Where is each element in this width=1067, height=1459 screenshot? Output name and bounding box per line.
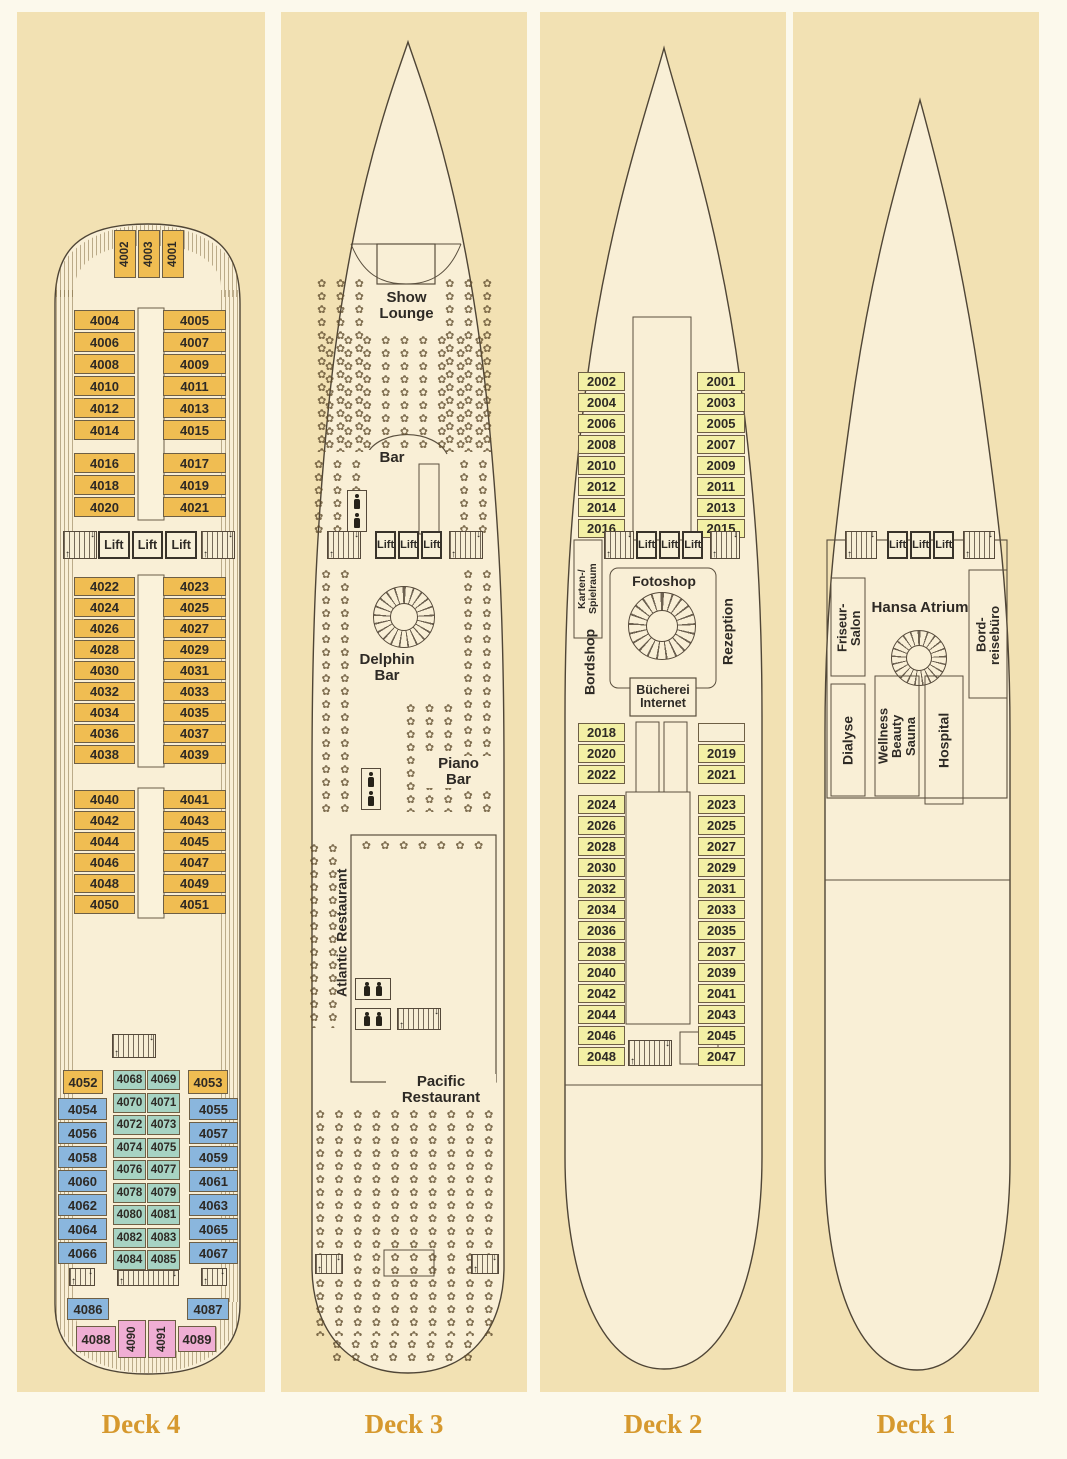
cabin-2031: 2031 bbox=[698, 879, 745, 898]
cabin-4015: 4015 bbox=[163, 420, 226, 440]
lift-icon: Lift bbox=[98, 531, 130, 559]
lift-icon: Lift bbox=[636, 531, 657, 559]
cabin-4069: 4069 bbox=[147, 1070, 180, 1090]
cabin-2009: 2009 bbox=[697, 456, 745, 475]
cabin-4026: 4026 bbox=[74, 619, 135, 638]
stairs-icon bbox=[604, 531, 634, 559]
cabin-4077: 4077 bbox=[147, 1160, 180, 1180]
cabin-2018: 2018 bbox=[578, 723, 625, 742]
room-friseur-salon: Friseur- Salon bbox=[833, 584, 865, 672]
cabin-4035: 4035 bbox=[163, 703, 226, 722]
cabin-2003: 2003 bbox=[697, 393, 745, 412]
deck-2-label: Deck 2 bbox=[540, 1402, 786, 1446]
lift-icon: Lift bbox=[165, 531, 197, 559]
cabin-4074: 4074 bbox=[113, 1138, 146, 1158]
seating-pattern: ✿ ✿ ✿ ✿ ✿ ✿ ✿ ✿ ✿ ✿ ✿ ✿ ✿ ✿ ✿ ✿ ✿ ✿ bbox=[329, 1338, 479, 1366]
stairs-icon bbox=[845, 531, 877, 559]
cabin-4008: 4008 bbox=[74, 354, 135, 374]
cabin-4023: 4023 bbox=[163, 577, 226, 596]
person-icon bbox=[363, 982, 371, 997]
stairs-icon bbox=[710, 531, 740, 559]
cabin-column: 401740194021 bbox=[163, 453, 226, 517]
cabin-4082: 4082 bbox=[113, 1228, 146, 1248]
cabin-column: 406940714073407540774079408140834085 bbox=[147, 1070, 180, 1270]
stairs-icon bbox=[117, 1270, 179, 1286]
lift-bank: Lift Lift Lift bbox=[98, 531, 197, 559]
cabin-2023: 2023 bbox=[698, 795, 745, 814]
corridor bbox=[138, 575, 164, 767]
cabin-column: 20192021 bbox=[698, 723, 745, 784]
cabin-2028: 2028 bbox=[578, 837, 625, 856]
cabin-4018: 4018 bbox=[74, 475, 135, 495]
cabin-column: 2024202620282030203220342036203820402042… bbox=[578, 795, 625, 1066]
stairs-icon bbox=[397, 1008, 441, 1030]
cabin-4085: 4085 bbox=[147, 1250, 180, 1270]
cabin-2001: 2001 bbox=[697, 372, 745, 391]
cabin-2048: 2048 bbox=[578, 1047, 625, 1066]
cabin-2026: 2026 bbox=[578, 816, 625, 835]
venue-atlantic-restaurant: Atlantic Restaurant bbox=[331, 860, 353, 1005]
room-hospital: Hospital bbox=[927, 684, 961, 796]
lift-icon: Lift bbox=[659, 531, 680, 559]
spiral-stairs-icon bbox=[373, 586, 435, 648]
cabin-2036: 2036 bbox=[578, 921, 625, 940]
cabin-4047: 4047 bbox=[163, 853, 226, 872]
cabin-4017: 4017 bbox=[163, 453, 226, 473]
venue-pacific-restaurant: Pacific Restaurant bbox=[386, 1074, 496, 1106]
lift-icon: Lift bbox=[682, 531, 703, 559]
deck-plan-page: 400240034001 400440064008401040124014 40… bbox=[0, 0, 1067, 1459]
cabin-2044: 2044 bbox=[578, 1005, 625, 1024]
cabin-4001: 4001 bbox=[162, 230, 184, 278]
cabin-2006: 2006 bbox=[578, 414, 625, 433]
cabin-2012: 2012 bbox=[578, 477, 625, 496]
seating-pattern: ✿ ✿ ✿ ✿ ✿ ✿ ✿ ✿ ✿ ✿ ✿ ✿ ✿ ✿ ✿ ✿ ✿ ✿ ✿ ✿ … bbox=[313, 568, 361, 812]
cabin-4065: 4065 bbox=[189, 1218, 238, 1240]
cabin-4006: 4006 bbox=[74, 332, 135, 352]
restroom-icon bbox=[361, 768, 381, 810]
cabin-2019: 2019 bbox=[698, 744, 745, 763]
room-bordreisebuero: Bord- reisebüro bbox=[971, 578, 1005, 692]
cabin-4090: 4090 bbox=[118, 1320, 146, 1358]
room-dialyse: Dialyse bbox=[833, 692, 863, 788]
cabin-4055: 4055 bbox=[189, 1098, 238, 1120]
galley-area bbox=[351, 835, 496, 1082]
spiral-stairs-icon bbox=[628, 592, 696, 660]
person-icon bbox=[367, 772, 375, 787]
cabin-4030: 4030 bbox=[74, 661, 135, 680]
cabin-4003: 4003 bbox=[138, 230, 160, 278]
cabin-4034: 4034 bbox=[74, 703, 135, 722]
cabin-4012: 4012 bbox=[74, 398, 135, 418]
cabin-4083: 4083 bbox=[147, 1228, 180, 1248]
cabin-4019: 4019 bbox=[163, 475, 226, 495]
cabin-2007: 2007 bbox=[697, 435, 745, 454]
deck-4-label: Deck 4 bbox=[17, 1402, 265, 1446]
cabin-4064: 4064 bbox=[58, 1218, 107, 1240]
cabin-4071: 4071 bbox=[147, 1093, 180, 1113]
cabin-column: 201820202022 bbox=[578, 723, 625, 784]
stairs-icon bbox=[201, 531, 235, 559]
person-icon bbox=[367, 791, 375, 806]
deck-3-panel: ✿ ✿ ✿ ✿ ✿ ✿ ✿ ✿ ✿ ✿ ✿ ✿ ✿ ✿ ✿ ✿ ✿ ✿ ✿ ✿ … bbox=[281, 12, 527, 1392]
cabin-4066: 4066 bbox=[58, 1242, 107, 1264]
deck-1-label: Deck 1 bbox=[793, 1402, 1039, 1446]
cabin-4046: 4046 bbox=[74, 853, 135, 872]
cabin-4043: 4043 bbox=[163, 811, 226, 830]
cabin-2033: 2033 bbox=[698, 900, 745, 919]
venue-show-lounge: Show Lounge bbox=[364, 290, 449, 322]
cabin-2008: 2008 bbox=[578, 435, 625, 454]
cabin-4056: 4056 bbox=[58, 1122, 107, 1144]
cabin-4091: 4091 bbox=[148, 1320, 176, 1358]
cabin-4009: 4009 bbox=[163, 354, 226, 374]
person-icon bbox=[375, 982, 383, 997]
cabin-2045: 2045 bbox=[698, 1026, 745, 1045]
cabin-4020: 4020 bbox=[74, 497, 135, 517]
cabin-4057: 4057 bbox=[189, 1122, 238, 1144]
cabin-2047: 2047 bbox=[698, 1047, 745, 1066]
stairs-icon bbox=[315, 1254, 343, 1274]
cabin-4007: 4007 bbox=[163, 332, 226, 352]
lift-icon: Lift bbox=[910, 531, 931, 559]
cabin-4011: 4011 bbox=[163, 376, 226, 396]
cabin-4088: 4088 bbox=[76, 1326, 116, 1352]
cabin-4075: 4075 bbox=[147, 1138, 180, 1158]
deck-2-panel: 20022004200620082010201220142016 2001200… bbox=[540, 12, 786, 1392]
lift-bank: Lift Lift Lift bbox=[887, 531, 950, 559]
cabin-2034: 2034 bbox=[578, 900, 625, 919]
lift-icon: Lift bbox=[887, 531, 908, 559]
cabin-4073: 4073 bbox=[147, 1115, 180, 1135]
cabin-2020: 2020 bbox=[578, 744, 625, 763]
room-rezeption: Rezeption bbox=[716, 584, 740, 679]
cabin-4044: 4044 bbox=[74, 832, 135, 851]
cabin-4049: 4049 bbox=[163, 874, 226, 893]
cabin-4067: 4067 bbox=[189, 1242, 238, 1264]
lift-icon: Lift bbox=[398, 531, 419, 559]
corridor bbox=[138, 308, 164, 520]
stairs-icon bbox=[63, 531, 97, 559]
cabin-4038: 4038 bbox=[74, 745, 135, 764]
restroom-icon bbox=[347, 490, 367, 532]
person-icon bbox=[363, 1012, 371, 1027]
cabin-4078: 4078 bbox=[113, 1183, 146, 1203]
cabin-4024: 4024 bbox=[74, 598, 135, 617]
venue-piano-bar: Piano Bar bbox=[421, 756, 496, 788]
cabin-4070: 4070 bbox=[113, 1093, 146, 1113]
deck-1-panel: Lift Lift Lift Friseur- Salon Hansa Atri… bbox=[793, 12, 1039, 1392]
cabin-4016: 4016 bbox=[74, 453, 135, 473]
cabin-blank bbox=[698, 723, 745, 742]
cabin-4036: 4036 bbox=[74, 724, 135, 743]
seating-pattern: ✿ ✿ ✿ ✿ ✿ ✿ ✿ ✿ ✿ ✿ ✿ ✿ ✿ ✿ ✿ ✿ ✿ ✿ ✿ ✿ … bbox=[311, 1108, 501, 1336]
person-icon bbox=[375, 1012, 383, 1027]
cabin-2010: 2010 bbox=[578, 456, 625, 475]
cabin-2004: 2004 bbox=[578, 393, 625, 412]
cabin-4013: 4013 bbox=[163, 398, 226, 418]
stern-rot-cabins: 40904091 bbox=[118, 1320, 176, 1358]
cabin-4014: 4014 bbox=[74, 420, 135, 440]
cabin-4080: 4080 bbox=[113, 1205, 146, 1225]
cabin-4072: 4072 bbox=[113, 1115, 146, 1135]
cabin-column: 404140434045404740494051 bbox=[163, 790, 226, 914]
cabin-4022: 4022 bbox=[74, 577, 135, 596]
cabin-2021: 2021 bbox=[698, 765, 745, 784]
cabin-4054: 4054 bbox=[58, 1098, 107, 1120]
restroom-icon bbox=[355, 978, 391, 1000]
cabin-4084: 4084 bbox=[113, 1250, 146, 1270]
cabin-4005: 4005 bbox=[163, 310, 226, 330]
spiral-stairs-icon bbox=[891, 630, 947, 686]
lift-icon: Lift bbox=[421, 531, 442, 559]
cabin-2027: 2027 bbox=[698, 837, 745, 856]
cabin-2030: 2030 bbox=[578, 858, 625, 877]
cabin-2037: 2037 bbox=[698, 942, 745, 961]
deck-3-label: Deck 3 bbox=[281, 1402, 527, 1446]
cabin-4089: 4089 bbox=[178, 1326, 216, 1352]
cabin-4048: 4048 bbox=[74, 874, 135, 893]
stairs-icon bbox=[201, 1268, 227, 1286]
stairs-icon bbox=[628, 1040, 672, 1066]
stairs-icon bbox=[449, 531, 483, 559]
cabin-4076: 4076 bbox=[113, 1160, 146, 1180]
cabin-column: 401640184020 bbox=[74, 453, 135, 517]
cabin-4081: 4081 bbox=[147, 1205, 180, 1225]
cabin-4060: 4060 bbox=[58, 1170, 107, 1192]
cabin-4037: 4037 bbox=[163, 724, 226, 743]
cabin-4052: 4052 bbox=[63, 1070, 103, 1094]
room-fotoshop: Fotoshop bbox=[628, 574, 700, 589]
cabin-2032: 2032 bbox=[578, 879, 625, 898]
lift-icon: Lift bbox=[132, 531, 164, 559]
lift-icon: Lift bbox=[375, 531, 396, 559]
person-icon bbox=[353, 494, 361, 509]
cabin-2042: 2042 bbox=[578, 984, 625, 1003]
cabin-2022: 2022 bbox=[578, 765, 625, 784]
cabin-2046: 2046 bbox=[578, 1026, 625, 1045]
cabin-2040: 2040 bbox=[578, 963, 625, 982]
cabin-4004: 4004 bbox=[74, 310, 135, 330]
cabin-2011: 2011 bbox=[697, 477, 745, 496]
bow-cabin-row: 400240034001 bbox=[114, 230, 184, 278]
cabin-4079: 4079 bbox=[147, 1183, 180, 1203]
cabin-2014: 2014 bbox=[578, 498, 625, 517]
cabin-2029: 2029 bbox=[698, 858, 745, 877]
room-buecherei-internet: Bücherei Internet bbox=[630, 684, 696, 710]
seating-pattern: ✿ ✿ ✿ ✿ ✿ ✿ ✿ ✿ ✿ ✿ ✿ ✿ ✿ ✿ ✿ ✿ ✿ ✿ ✿ ✿ … bbox=[321, 334, 491, 450]
cabin-column: 402240244026402840304032403440364038 bbox=[74, 577, 135, 764]
cabin-column: 400540074009401140134015 bbox=[163, 310, 226, 440]
stairs-icon bbox=[69, 1268, 95, 1286]
cabin-4025: 4025 bbox=[163, 598, 226, 617]
cabin-4029: 4029 bbox=[163, 640, 226, 659]
cabin-4050: 4050 bbox=[74, 895, 135, 914]
venue-delphin-bar: Delphin Bar bbox=[351, 652, 423, 684]
cabin-4062: 4062 bbox=[58, 1194, 107, 1216]
cabin-2038: 2038 bbox=[578, 942, 625, 961]
room-wellness: Wellness Beauty Sauna bbox=[877, 682, 917, 790]
room-hansa-atrium: Hansa Atrium bbox=[851, 600, 989, 616]
cabin-2039: 2039 bbox=[698, 963, 745, 982]
cabin-4040: 4040 bbox=[74, 790, 135, 809]
cabin-4027: 4027 bbox=[163, 619, 226, 638]
cabin-4087: 4087 bbox=[187, 1298, 229, 1320]
cabin-4033: 4033 bbox=[163, 682, 226, 701]
cabin-column: 20022004200620082010201220142016 bbox=[578, 372, 625, 538]
cabin-2043: 2043 bbox=[698, 1005, 745, 1024]
cabin-column: 406840704072407440764078408040824084 bbox=[113, 1070, 146, 1270]
stairs-icon bbox=[112, 1034, 156, 1058]
cabin-2024: 2024 bbox=[578, 795, 625, 814]
room-bordshop: Bordshop bbox=[578, 612, 602, 712]
stairs-icon bbox=[471, 1254, 499, 1274]
cabin-column: 20012003200520072009201120132015 bbox=[697, 372, 745, 538]
lift-bank: Lift Lift Lift bbox=[375, 531, 438, 559]
cabin-4010: 4010 bbox=[74, 376, 135, 396]
cabin-4058: 4058 bbox=[58, 1146, 107, 1168]
cabin-4042: 4042 bbox=[74, 811, 135, 830]
cabin-4041: 4041 bbox=[163, 790, 226, 809]
bar-counter bbox=[419, 464, 439, 534]
cabin-4039: 4039 bbox=[163, 745, 226, 764]
seating-pattern: ✿ ✿ ✿ ✿ ✿ ✿ ✿ ✿ ✿ ✿ ✿ ✿ bbox=[357, 839, 491, 854]
cabin-4059: 4059 bbox=[189, 1146, 238, 1168]
cabin-4032: 4032 bbox=[74, 682, 135, 701]
deck-4-panel: 400240034001 400440064008401040124014 40… bbox=[17, 12, 265, 1392]
restroom-icon bbox=[355, 1008, 391, 1030]
cabin-column: 404040424044404640484050 bbox=[74, 790, 135, 914]
cabin-4028: 4028 bbox=[74, 640, 135, 659]
person-icon bbox=[353, 513, 361, 528]
cabin-column: 4054405640584060406240644066 bbox=[58, 1098, 107, 1264]
lift-bank: Lift Lift Lift bbox=[636, 531, 699, 559]
cabin-2035: 2035 bbox=[698, 921, 745, 940]
cabin-4031: 4031 bbox=[163, 661, 226, 680]
cabin-column: 2023202520272029203120332035203720392041… bbox=[698, 795, 745, 1066]
cabin-2013: 2013 bbox=[697, 498, 745, 517]
cabin-4021: 4021 bbox=[163, 497, 226, 517]
cabin-4053: 4053 bbox=[188, 1070, 228, 1094]
cabin-2025: 2025 bbox=[698, 816, 745, 835]
cabin-4061: 4061 bbox=[189, 1170, 238, 1192]
cabin-4063: 4063 bbox=[189, 1194, 238, 1216]
cabin-2041: 2041 bbox=[698, 984, 745, 1003]
seating-pattern: ✿ ✿ ✿ ✿ ✿ ✿ ✿ ✿ ✿ ✿ ✿ ✿ ✿ ✿ ✿ ✿ ✿ ✿ ✿ ✿ … bbox=[451, 458, 499, 538]
stairs-icon bbox=[963, 531, 995, 559]
cabin-column: 4055405740594061406340654067 bbox=[189, 1098, 238, 1264]
stairs-icon bbox=[327, 531, 361, 559]
cabin-column: 402340254027402940314033403540374039 bbox=[163, 577, 226, 764]
venue-bar: Bar bbox=[366, 450, 418, 466]
cabin-4068: 4068 bbox=[113, 1070, 146, 1090]
cabin-4051: 4051 bbox=[163, 895, 226, 914]
cabin-4045: 4045 bbox=[163, 832, 226, 851]
cabin-2005: 2005 bbox=[697, 414, 745, 433]
cabin-column: 400440064008401040124014 bbox=[74, 310, 135, 440]
cabin-4086: 4086 bbox=[67, 1298, 109, 1320]
corridor bbox=[138, 788, 164, 918]
cabin-4002: 4002 bbox=[114, 230, 136, 278]
cabin-2002: 2002 bbox=[578, 372, 625, 391]
lift-icon: Lift bbox=[933, 531, 954, 559]
